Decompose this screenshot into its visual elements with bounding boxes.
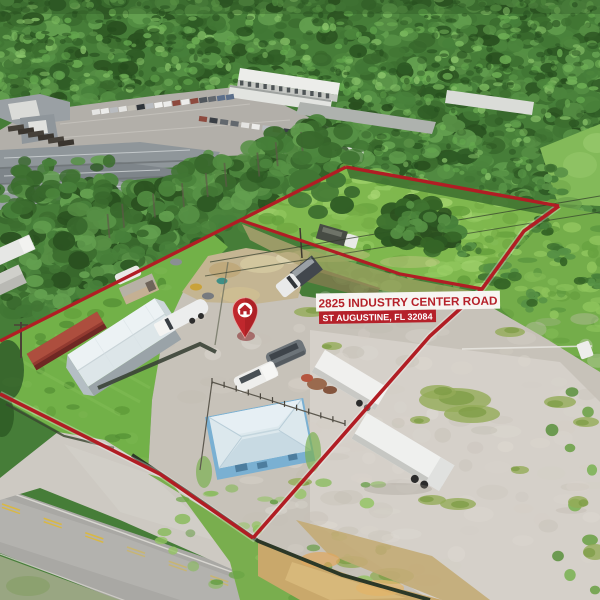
svg-text:ST AUGUSTINE, FL 32084: ST AUGUSTINE, FL 32084 [322, 312, 432, 324]
svg-text:2825 INDUSTRY CENTER ROAD: 2825 INDUSTRY CENTER ROAD [318, 294, 498, 311]
